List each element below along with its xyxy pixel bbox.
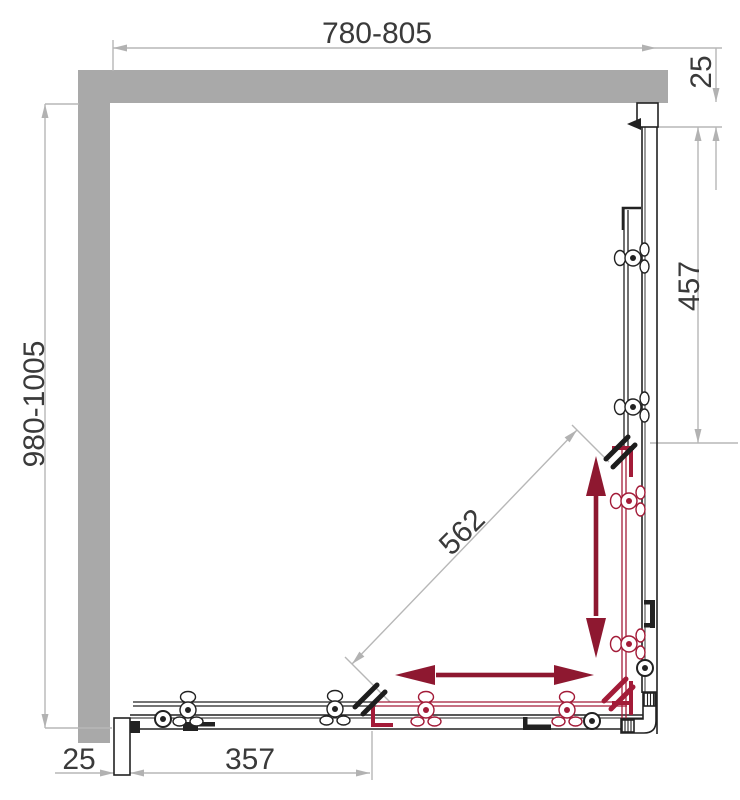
roller-fixed-right-2 <box>615 392 650 422</box>
roller-door-bottom-2 <box>552 692 582 727</box>
dim-left-arrow-bottom <box>42 714 49 728</box>
frame-rails <box>114 103 657 734</box>
wall-profile-bottom-left <box>114 718 130 775</box>
shower-enclosure-diagram: 780-805 980-1005 25 457 562 357 25 <box>0 0 740 800</box>
label-fixed-panel-bottom: 357 <box>225 743 275 776</box>
roller-door-right-1 <box>611 486 646 516</box>
dim-25top-arrow-down <box>713 88 720 102</box>
profile-clamp-bottom <box>130 721 140 733</box>
dim-357-arrow-right <box>356 770 370 777</box>
arrow-horizontal-head-left-icon <box>395 665 435 685</box>
slide-direction-arrows <box>395 456 606 685</box>
dim-562-ext-upper <box>572 425 609 462</box>
dimension-labels: 780-805 980-1005 25 457 562 357 25 <box>18 17 718 776</box>
profile-clamp-top-icon <box>627 118 641 130</box>
wall-top <box>78 70 668 103</box>
dim-top-arrow-right <box>642 45 656 52</box>
rail-clip-bottom-right <box>523 717 551 730</box>
rail-clip-right <box>644 600 655 628</box>
panel-hook-bracket <box>623 208 641 230</box>
diagram-canvas: 780-805 980-1005 25 457 562 357 25 <box>0 0 740 800</box>
wall-left <box>78 70 110 743</box>
arrow-horizontal-shaft <box>436 673 554 678</box>
label-depth-left: 980-1005 <box>18 341 51 468</box>
dim-457-arrow-top <box>695 127 702 141</box>
label-fixed-panel-right: 457 <box>673 261 706 311</box>
label-width-top: 780-805 <box>322 17 432 50</box>
corner-bracket-h <box>612 701 633 705</box>
dim-25bottom-arrow <box>100 770 114 777</box>
screw-bottom-right-dot <box>589 718 595 724</box>
dim-357-arrow-left <box>130 770 144 777</box>
brackets <box>183 208 655 731</box>
dim-top-arrow-left <box>113 45 127 52</box>
arrow-vertical-head-down-icon <box>586 618 606 658</box>
roller-door-bottom-1 <box>411 692 441 727</box>
corner-bracket-v <box>629 681 633 715</box>
screw-right-rail-dot <box>642 665 648 671</box>
door-bottom-bracket-h <box>371 723 393 727</box>
dim-left-arrow-top <box>42 104 49 118</box>
arrow-vertical-shaft <box>594 494 599 616</box>
screw-bottom-left-dot <box>160 716 166 722</box>
label-wall-profile-bottom: 25 <box>62 743 95 776</box>
label-entry-diagonal: 562 <box>433 503 492 562</box>
glass-panels <box>133 208 628 719</box>
roller-fixed-right-1 <box>615 243 650 273</box>
label-wall-profile-top: 25 <box>685 55 718 88</box>
roller-fixed-bottom-2 <box>320 691 350 726</box>
roller-fixed-bottom-1 <box>173 692 203 727</box>
dim-25top-arrow-up <box>713 127 720 141</box>
rollers <box>173 243 649 726</box>
arrow-vertical-head-up-icon <box>586 456 606 496</box>
roller-door-right-2 <box>611 629 646 659</box>
dim-457-arrow-bottom <box>695 429 702 443</box>
arrow-horizontal-head-right-icon <box>554 665 594 685</box>
